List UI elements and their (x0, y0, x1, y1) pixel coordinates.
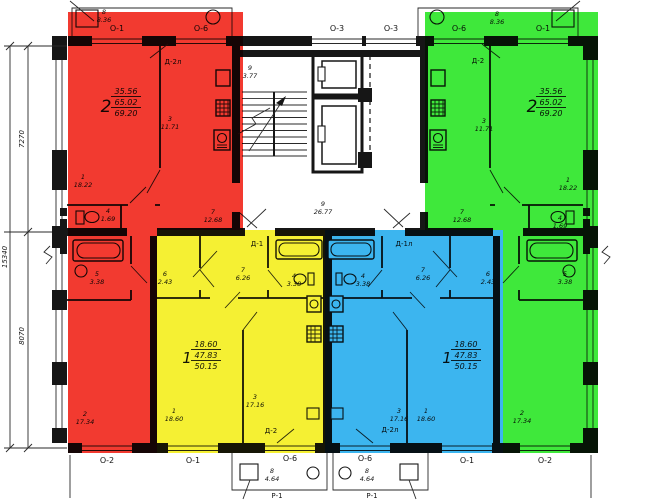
axis-label: О-2 (538, 456, 552, 465)
railing-label: Р-1 (271, 492, 282, 500)
break-mark (602, 246, 610, 264)
balcony-area: 4.64 (360, 475, 374, 483)
axis-label: О-6 (358, 454, 372, 463)
room-area: 3.77 (243, 72, 258, 80)
railing-label: Р-1 (366, 492, 377, 500)
yellow-apartment-highlight[interactable] (157, 230, 325, 453)
elevator-shafts (313, 55, 372, 172)
balcony-number: 8 (270, 467, 274, 475)
room-number: 9 (321, 200, 325, 208)
axis-label: О-1 (186, 456, 200, 465)
dimension-text: 7270 (18, 130, 26, 148)
staircase (238, 92, 307, 156)
room-area: 26.77 (314, 208, 333, 216)
blue-apartment-highlight[interactable] (325, 230, 503, 453)
apartment-highlights (68, 12, 598, 453)
floor-plan-drawing: О-1 О-6 О-3 О-3 О-6 О-1 О-2 О-1 О-6 О-6 … (0, 0, 650, 500)
room-number: 9 (248, 64, 252, 72)
balcony-number: 8 (365, 467, 369, 475)
axis-label: О-3 (384, 24, 398, 33)
axis-label: О-6 (283, 454, 297, 463)
axis-label: О-2 (100, 456, 114, 465)
break-mark (44, 246, 52, 264)
axis-label: О-3 (330, 24, 344, 33)
dimension-text: 15340 (1, 245, 9, 268)
dimension-text: 8070 (18, 327, 26, 345)
axis-label: О-1 (460, 456, 474, 465)
floor-plan-page: О-1 О-6 О-3 О-3 О-6 О-1 О-2 О-1 О-6 О-6 … (0, 0, 650, 500)
balcony-area: 4.64 (265, 475, 279, 483)
